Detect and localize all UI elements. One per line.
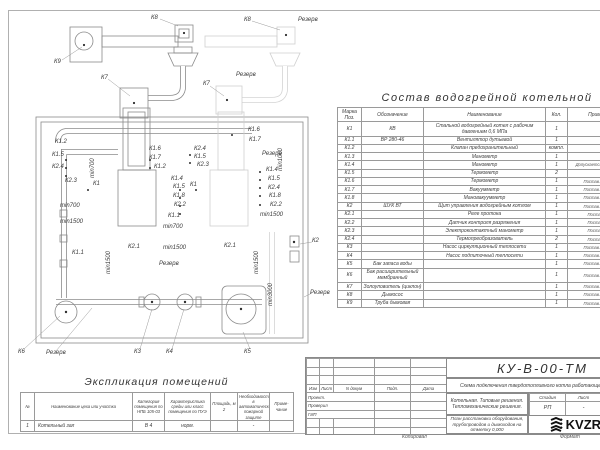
expl-cell: В 4: [133, 421, 165, 432]
comp-cell: Дымосос: [362, 291, 424, 299]
signature-table: ИзмЛистN докумПодп.ДатаПроект.ПроверилГИ…: [306, 358, 447, 435]
comp-cell: Постав. с ШУК: [568, 219, 600, 227]
stage-grid: СтадияЛистЛистов РП--: [528, 393, 600, 415]
comp-cell: Постав. по соглас.: [568, 177, 600, 185]
comp-cell: 1: [546, 202, 568, 210]
sign-cell: [320, 376, 334, 385]
comp-cell: [362, 227, 424, 235]
title-block: ИзмЛистN докумПодп.ДатаПроект.ПроверилГИ…: [305, 357, 600, 435]
comp-cell: К1.8: [338, 194, 362, 202]
comp-cell: Термометр: [424, 169, 546, 177]
comp-cell: Датчик контроля разряжения: [424, 219, 546, 227]
comp-cell: [362, 235, 424, 243]
comp-cell: К1.5: [338, 169, 362, 177]
sign-role-cell: Проверил: [307, 401, 375, 410]
comp-cell: К6: [338, 268, 362, 283]
object-name: Котельная. Типовые решения. Тепломеханич…: [446, 393, 528, 415]
comp-cell: Манометр: [424, 153, 546, 161]
comp-cell: К9: [338, 299, 362, 307]
comp-cell: [568, 144, 600, 152]
table-row: К1.3Манометр1: [338, 153, 600, 161]
comp-cell: К5: [338, 260, 362, 268]
comp-cell: К7: [338, 283, 362, 291]
drawing-sheet: К9К8К8РезервК7К7РезервК1.2К1.5К2.4К2.3К1…: [0, 0, 600, 450]
table-row: К5Бак запаса воды1Постав. по соглас.: [338, 260, 600, 268]
comp-cell: К1.7: [338, 186, 362, 194]
comp-cell: [424, 299, 546, 307]
comp-cell: [362, 252, 424, 260]
comp-cell: [362, 153, 424, 161]
comp-cell: Термопреобразователь: [424, 235, 546, 243]
sign-cell: [375, 393, 411, 402]
comp-cell: 1: [546, 186, 568, 194]
sign-cell: [334, 419, 375, 428]
sign-cell: [411, 367, 447, 376]
table-row: К1.4Манометр1Допускается зам. поз. К2.3: [338, 161, 600, 169]
comp-cell: [362, 210, 424, 218]
comp-cell: К1.4: [338, 161, 362, 169]
format-label: Формат: [560, 434, 580, 440]
comp-cell: 1: [546, 210, 568, 218]
comp-cell: 2: [546, 235, 568, 243]
sign-header-cell: Подп.: [375, 384, 411, 393]
comp-cell: Насос подпиточный теплосети: [424, 252, 546, 260]
expl-header-cell: Характеристика среды или класс помещения…: [165, 393, 211, 421]
sign-cell: [411, 410, 447, 419]
sign-cell: [307, 359, 320, 368]
comp-cell: Стальной водогрейный котел с рабочим дав…: [424, 122, 546, 137]
comp-cell: [362, 194, 424, 202]
sign-cell: [334, 427, 375, 435]
comp-cell: [424, 260, 546, 268]
table-row: К2ШУК ВТЩит управления водогрейным котло…: [338, 202, 600, 210]
comp-cell: ВР 280-46: [362, 136, 424, 144]
comp-cell: 1: [546, 161, 568, 169]
comp-cell: ШУК ВТ: [362, 202, 424, 210]
kvzr-logo: KVZR КОТЕЛЬН ЗАВОД Р: [528, 415, 600, 434]
comp-cell: [568, 136, 600, 144]
expl-header-cell: №: [21, 393, 35, 421]
sign-cell: [411, 376, 447, 385]
comp-cell: [362, 177, 424, 185]
stage-header-cell: Стадия: [530, 393, 566, 401]
comp-cell: Труба дымовая: [362, 299, 424, 307]
comp-cell: 1: [546, 283, 568, 291]
comp-cell: 1: [546, 219, 568, 227]
sheet-name: План расстановки оборудования, трубопров…: [446, 415, 528, 434]
comp-cell: [362, 219, 424, 227]
sign-cell: [375, 376, 411, 385]
table-row: К2.3Электроконтактный манометр1Постав. с…: [338, 227, 600, 235]
expl-header-cell: Наименование цеха или участка: [35, 393, 133, 421]
comp-cell: К1.1: [338, 136, 362, 144]
sign-row: [307, 419, 447, 428]
comp-cell: [362, 243, 424, 251]
comp-cell: 1: [546, 243, 568, 251]
comp-cell: Золоуловитель (циклон): [362, 283, 424, 291]
table-row: К2.2Датчик контроля разряжения1Постав. с…: [338, 219, 600, 227]
sign-cell: [307, 367, 320, 376]
expl-cell: Котельный зал: [35, 421, 133, 432]
comp-cell: КВ: [362, 122, 424, 137]
comp-cell: Вентилятор дутьевой: [424, 136, 546, 144]
comp-cell: 1: [546, 260, 568, 268]
comp-cell: К2: [338, 202, 362, 210]
expl-cell: [270, 421, 294, 432]
comp-cell: 1: [546, 136, 568, 144]
comp-cell: Вакуумметр: [424, 186, 546, 194]
comp-cell: Постав. с ШУК: [568, 210, 600, 218]
comp-cell: Постав. с ШУК: [568, 235, 600, 243]
comp-cell: К1.3: [338, 153, 362, 161]
stage-value-cell: -: [566, 401, 600, 415]
plan-view: [24, 108, 312, 351]
comp-cell: [568, 169, 600, 177]
sign-cell: [375, 367, 411, 376]
sign-cell: [320, 419, 334, 428]
comp-header-cell: Марка Поз.: [338, 108, 362, 122]
sign-cell: [334, 359, 375, 368]
logo-wordmark: KVZR: [566, 417, 600, 432]
sign-cell: [411, 393, 447, 402]
table-row: К9Труба дымовая1Постав. по соглас.: [338, 299, 600, 307]
table-row: К3Насос циркуляционный теплосети1Постав.…: [338, 243, 600, 251]
sign-header-cell: Дата: [411, 384, 447, 393]
sign-row: [307, 367, 447, 376]
sign-cell: [307, 427, 320, 435]
table-row: К8Дымосос1Постав. по соглас.: [338, 291, 600, 299]
sign-header-cell: Изм: [307, 384, 320, 393]
sign-cell: [375, 359, 411, 368]
comp-cell: компл.: [546, 144, 568, 152]
table-row: К2.4Термопреобразователь2Постав. с ШУК: [338, 235, 600, 243]
sign-cell: [375, 419, 411, 428]
comp-cell: Постав. по соглас.: [568, 243, 600, 251]
comp-cell: К2.2: [338, 219, 362, 227]
comp-cell: К1.6: [338, 177, 362, 185]
comp-cell: [362, 144, 424, 152]
comp-cell: Электроконтактный манометр: [424, 227, 546, 235]
explication-table-title: Экспликация помещений: [20, 376, 293, 388]
sign-cell: [307, 419, 320, 428]
comp-cell: Бак запаса воды: [362, 260, 424, 268]
expl-header-cell: Категория помещения по НПБ 105-03: [133, 393, 165, 421]
comp-cell: Постав. по соглас.: [568, 268, 600, 283]
table-row: К1.7Вакуумметр1Постав. по соглас.: [338, 186, 600, 194]
comp-cell: К1: [338, 122, 362, 137]
comp-cell: К2.4: [338, 235, 362, 243]
sign-role-cell: Проект.: [307, 393, 375, 402]
comp-cell: [424, 291, 546, 299]
comp-cell: К2.1: [338, 210, 362, 218]
comp-cell: [362, 161, 424, 169]
comp-cell: Постав. по соглас.: [568, 202, 600, 210]
comp-cell: Постав. по соглас.: [568, 291, 600, 299]
comp-cell: К4: [338, 252, 362, 260]
comp-cell: Постав. по соглас.: [568, 194, 600, 202]
document-subtitle: Схема подключения твердотопливного котла…: [446, 378, 600, 393]
comp-cell: Постав. по соглас.: [568, 260, 600, 268]
expl-cell: норм.: [165, 421, 211, 432]
comp-cell: 1: [546, 194, 568, 202]
expl-cell: [211, 421, 238, 432]
copied-label: Копировал: [402, 434, 427, 440]
comp-cell: Постав. по соглас.: [568, 186, 600, 194]
sign-header-cell: N докум: [334, 384, 375, 393]
table-row: К1.5Термометр2: [338, 169, 600, 177]
comp-cell: К3: [338, 243, 362, 251]
sign-cell: [320, 359, 334, 368]
comp-cell: 1: [546, 227, 568, 235]
document-code: КУ-В-00-ТМ: [446, 358, 600, 378]
comp-cell: [362, 169, 424, 177]
comp-cell: Постав. с ШУК: [568, 227, 600, 235]
sign-row: [307, 359, 447, 368]
comp-cell: 1: [546, 252, 568, 260]
comp-cell: 1: [546, 177, 568, 185]
comp-cell: Манометр: [424, 161, 546, 169]
comp-cell: Бак расширительный мембранный: [362, 268, 424, 283]
explication-table: №Наименование цеха или участкаКатегория …: [20, 392, 294, 432]
table-row: К1.6Термометр1Постав. по соглас.: [338, 177, 600, 185]
comp-cell: Щит управления водогрейным котлом: [424, 202, 546, 210]
sign-cell: [375, 410, 411, 419]
sign-row: Проект.: [307, 393, 447, 402]
comp-header-cell: Кол.: [546, 108, 568, 122]
table-row: К1.2Клапан предохранительныйкомпл.: [338, 144, 600, 152]
expl-header-cell: Необходимость в автоматической пожарной …: [238, 393, 270, 421]
comp-cell: Реле протока: [424, 210, 546, 218]
comp-header-cell: Примечание: [568, 108, 600, 122]
table-row: К1.8Мановакуумметр1Постав. по соглас.: [338, 194, 600, 202]
table-row: К7Золоуловитель (циклон)1Постав. по согл…: [338, 283, 600, 291]
sign-cell: [307, 376, 320, 385]
sign-cell: [375, 401, 411, 410]
table-row: К2.1Реле протока1Постав. с ШУК: [338, 210, 600, 218]
coil-icon: [550, 417, 563, 432]
table-row: К1КВСтальной водогрейный котел с рабочим…: [338, 122, 600, 137]
stage-value-cell: РП: [530, 401, 566, 415]
sign-role-cell: ГИП: [307, 410, 375, 419]
sign-header-cell: Лист: [320, 384, 334, 393]
sign-cell: [334, 367, 375, 376]
sign-cell: [320, 427, 334, 435]
sign-cell: [411, 359, 447, 368]
table-row: К4Насос подпиточный теплосети1Постав. по…: [338, 252, 600, 260]
sign-row: Проверил: [307, 401, 447, 410]
comp-cell: Мановакуумметр: [424, 194, 546, 202]
comp-header-cell: Обозначение: [362, 108, 424, 122]
comp-cell: Постав. по соглас.: [568, 252, 600, 260]
expl-cell: 1: [21, 421, 35, 432]
comp-cell: Постав. по соглас.: [568, 283, 600, 291]
comp-cell: 2: [546, 169, 568, 177]
sign-row: ИзмЛистN докумПодп.Дата: [307, 384, 447, 393]
comp-cell: [362, 186, 424, 194]
comp-cell: 1: [546, 153, 568, 161]
comp-cell: К8: [338, 291, 362, 299]
comp-cell: [424, 268, 546, 283]
sign-cell: [334, 376, 375, 385]
comp-cell: [424, 283, 546, 291]
comp-cell: [568, 153, 600, 161]
comp-cell: 1: [546, 122, 568, 137]
expl-cell: -: [238, 421, 270, 432]
sign-cell: [411, 401, 447, 410]
comp-cell: 1: [546, 268, 568, 283]
stage-header-cell: Лист: [566, 393, 600, 401]
comp-cell: [568, 122, 600, 137]
sign-cell: [411, 419, 447, 428]
sign-row: ГИП: [307, 410, 447, 419]
comp-cell: 1: [546, 299, 568, 307]
table-row: 1Котельный залВ 4норм.-: [21, 421, 294, 432]
composition-table: Марка Поз.ОбозначениеНаименованиеКол.При…: [337, 107, 600, 308]
comp-header-cell: Наименование: [424, 108, 546, 122]
table-row: К6Бак расширительный мембранный1Постав. …: [338, 268, 600, 283]
sign-cell: [320, 367, 334, 376]
comp-cell: Постав. по соглас.: [568, 299, 600, 307]
expl-header-cell: Приме- чание: [270, 393, 294, 421]
comp-cell: Клапан предохранительный: [424, 144, 546, 152]
sign-row: [307, 376, 447, 385]
comp-cell: К1.2: [338, 144, 362, 152]
composition-table-title: Состав водогрейной котельной: [337, 92, 600, 104]
expl-header-cell: Площадь, м 2: [211, 393, 238, 421]
comp-cell: Насос циркуляционный теплосети: [424, 243, 546, 251]
comp-cell: К2.3: [338, 227, 362, 235]
comp-cell: Термометр: [424, 177, 546, 185]
comp-cell: 1: [546, 291, 568, 299]
table-row: К1.1ВР 280-46Вентилятор дутьевой1: [338, 136, 600, 144]
elevation-view: [62, 19, 300, 118]
comp-cell: Допускается зам. поз. К2.3: [568, 161, 600, 169]
